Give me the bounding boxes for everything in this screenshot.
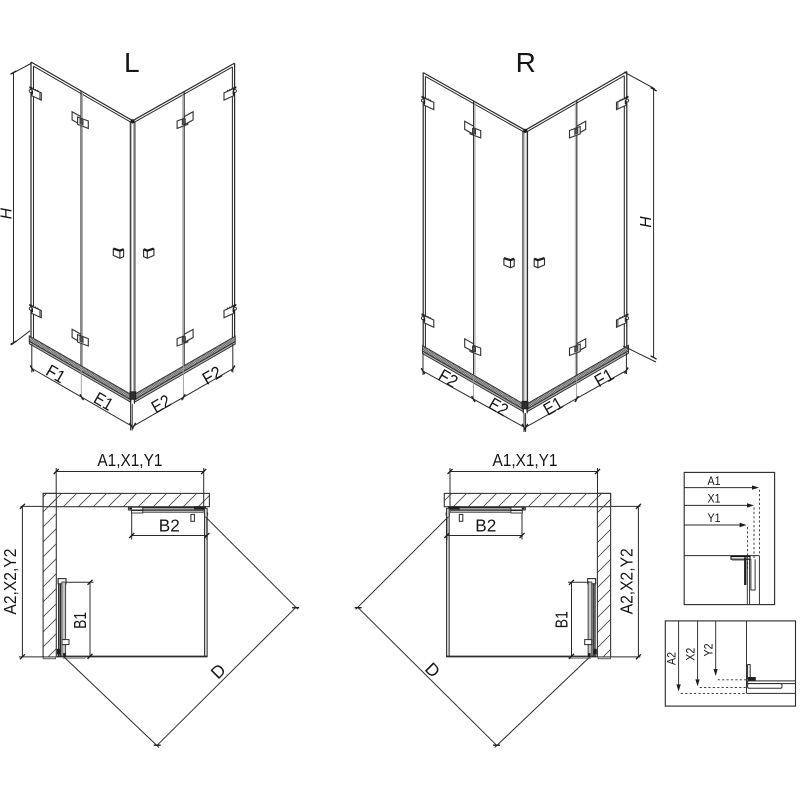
svg-text:R: R — [516, 47, 536, 78]
svg-text:Y1: Y1 — [708, 513, 721, 525]
svg-text:B1: B1 — [70, 612, 90, 629]
svg-text:A2,X2,Y2: A2,X2,Y2 — [0, 549, 20, 615]
svg-text:H: H — [0, 207, 15, 219]
svg-text:A1,X1,Y1: A1,X1,Y1 — [493, 450, 558, 470]
svg-text:A1: A1 — [708, 476, 721, 488]
svg-text:A2,X2,Y2: A2,X2,Y2 — [617, 548, 637, 614]
svg-text:X2: X2 — [686, 648, 698, 661]
svg-text:A1,X1,Y1: A1,X1,Y1 — [97, 450, 162, 470]
svg-text:L: L — [124, 47, 140, 78]
svg-text:B2: B2 — [475, 515, 496, 535]
svg-text:X1: X1 — [708, 494, 721, 506]
svg-text:H: H — [638, 216, 655, 228]
svg-text:A2: A2 — [667, 652, 679, 665]
svg-text:B1: B1 — [551, 611, 571, 628]
svg-text:B2: B2 — [159, 515, 180, 535]
svg-text:Y2: Y2 — [704, 644, 716, 657]
